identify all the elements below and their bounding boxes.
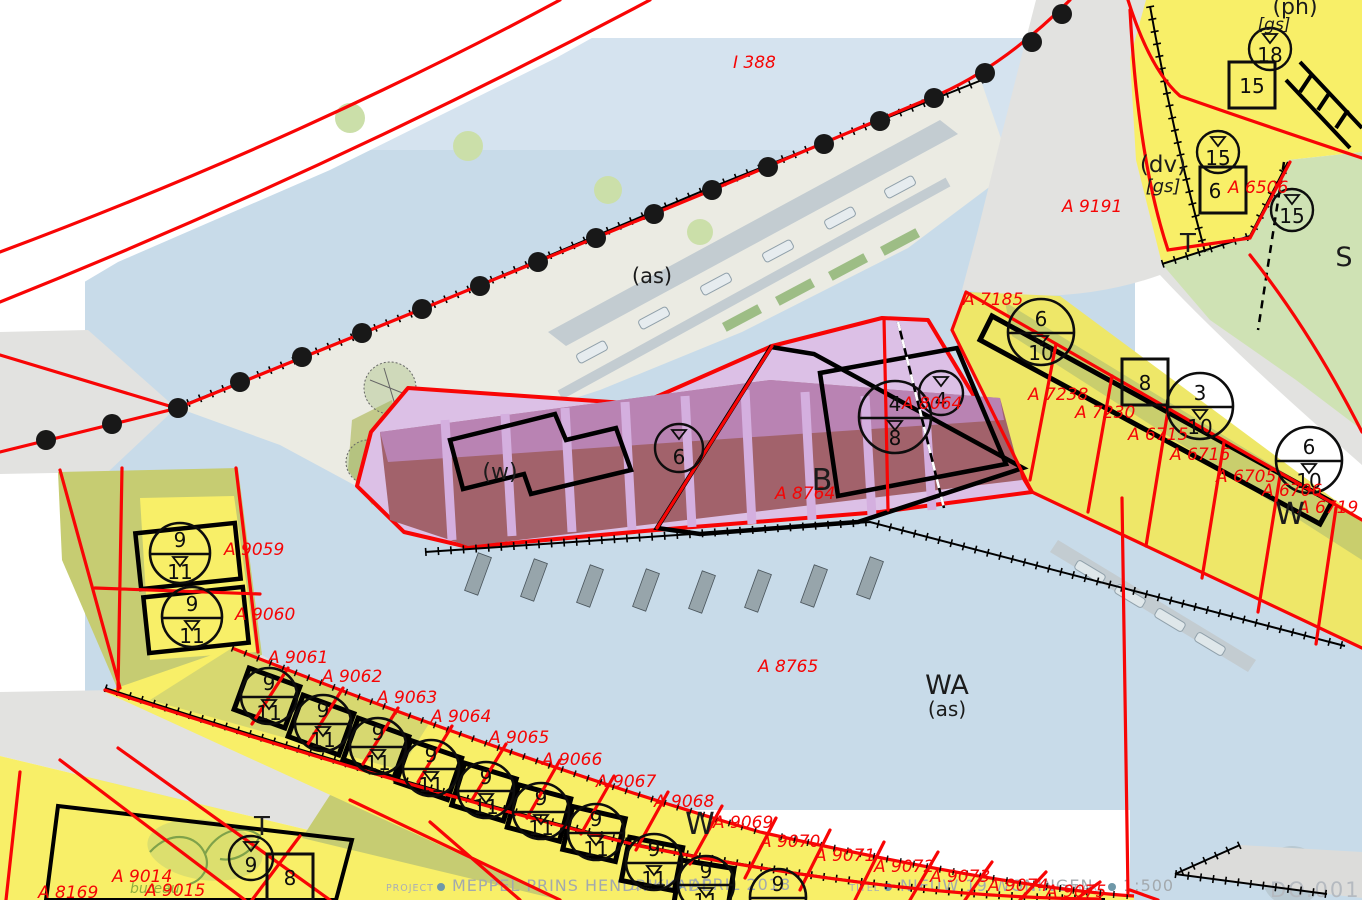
height-symbol-split-circle: 911 — [162, 587, 222, 648]
svg-text:6: 6 — [1035, 307, 1048, 331]
zone-code-label: (as) — [632, 264, 672, 288]
parcel-number-label: A 8765 — [757, 657, 818, 677]
svg-text:9: 9 — [317, 698, 330, 722]
parcel-number-label: A 6506 — [1227, 178, 1288, 198]
parcel-number-label: A 9060 — [234, 605, 295, 625]
height-symbol-split-circle: 911 — [295, 695, 351, 752]
svg-text:6: 6 — [1303, 435, 1316, 459]
parcel-number-label: A 7230 — [1074, 403, 1135, 423]
footer-schaal-value: 1:500 — [1123, 876, 1174, 895]
height-symbol-split-circle: 911 — [458, 762, 514, 819]
svg-text:6: 6 — [673, 445, 686, 469]
parcel-number-label: A 7185 — [962, 290, 1023, 310]
parcel-number-label: A 9072 — [873, 857, 934, 877]
parcel-number-label: A 9074 — [987, 876, 1048, 896]
zone-code-label: (dv) — [1140, 152, 1186, 178]
parcel-number-label: A 9071 — [814, 846, 875, 866]
parcel-number-label: A 9065 — [488, 728, 549, 748]
zone-code-label: (as) — [928, 697, 966, 721]
svg-text:11: 11 — [583, 837, 608, 861]
svg-text:15: 15 — [1239, 74, 1264, 98]
map-svg: PROJECT MEPPEL PRINS HENDRIKKADE DATUM A… — [0, 0, 1362, 900]
height-symbol-split-circle: 911 — [150, 523, 210, 584]
zone-code-label: (w) — [482, 460, 517, 485]
svg-text:11: 11 — [418, 773, 443, 797]
svg-text:9: 9 — [772, 872, 785, 896]
zone-code-label: [gs] — [1258, 15, 1291, 35]
parcel-number-label: A 9061 — [267, 648, 328, 668]
svg-text:10: 10 — [1028, 341, 1053, 365]
svg-text:9: 9 — [263, 671, 276, 695]
svg-text:9: 9 — [590, 807, 603, 831]
zone-code-label: B — [812, 463, 833, 498]
parcel-number-label: A 9191 — [1061, 197, 1122, 217]
svg-text:11: 11 — [365, 751, 390, 775]
height-symbol-split-circle: 911 — [626, 834, 682, 891]
zone-code-label: S — [1335, 242, 1352, 273]
height-symbol-split-circle: 911 — [241, 668, 297, 725]
height-symbol-split-circle: 911 — [403, 740, 459, 797]
svg-text:8: 8 — [889, 426, 902, 450]
svg-text:11: 11 — [179, 624, 204, 648]
parcel-number-label: A 9059 — [223, 540, 284, 560]
svg-text:9: 9 — [535, 786, 548, 810]
parcel-number-label: A 9075 — [1045, 882, 1106, 900]
parcel-number-label: A 9066 — [541, 750, 602, 770]
parcel-number-label: A 9070 — [759, 832, 820, 852]
svg-text:9: 9 — [700, 859, 713, 883]
parcel-number-label: A 6715 — [1127, 425, 1188, 445]
parcel-number-label: I 388 — [733, 53, 776, 73]
parcel-number-label: A 9063 — [376, 688, 437, 708]
zone-code-label: T — [253, 812, 270, 842]
svg-text:15: 15 — [1279, 204, 1304, 228]
svg-text:10: 10 — [1187, 415, 1212, 439]
svg-text:9: 9 — [372, 721, 385, 745]
zone-code-label: [gs] — [1146, 176, 1181, 197]
height-symbol-split-circle: 911 — [568, 804, 624, 861]
parcel-number-label: A 9064 — [430, 707, 491, 727]
footer-project-key: PROJECT — [386, 883, 434, 894]
svg-text:8: 8 — [284, 866, 297, 890]
parcel-number-label: A 8064 — [901, 394, 962, 414]
zoning-map-canvas[interactable]: PROJECT MEPPEL PRINS HENDRIKKADE DATUM A… — [0, 0, 1362, 900]
svg-text:8: 8 — [1139, 371, 1152, 395]
height-symbol-split-circle: 911 — [513, 783, 569, 840]
svg-text:11: 11 — [256, 701, 281, 725]
parcel-number-label: A 6719 — [1297, 498, 1358, 518]
parcel-number-label: A 9073 — [929, 867, 990, 887]
zone-code-label: W — [685, 807, 715, 842]
svg-text:11: 11 — [641, 867, 666, 891]
parcel-number-label: A 9067 — [595, 772, 656, 792]
svg-text:3: 3 — [1194, 381, 1207, 405]
svg-text:4: 4 — [889, 392, 902, 416]
svg-text:11: 11 — [167, 560, 192, 584]
zone-code-label: T — [1179, 229, 1196, 259]
svg-text:9: 9 — [245, 853, 258, 877]
svg-text:11: 11 — [528, 816, 553, 840]
svg-text:9: 9 — [480, 765, 493, 789]
parcel-number-label: A 8169 — [37, 883, 98, 900]
parcel-number-label: A 9069 — [712, 813, 773, 833]
svg-text:11: 11 — [473, 795, 498, 819]
svg-text:9: 9 — [186, 592, 199, 616]
svg-text:6: 6 — [1209, 179, 1222, 203]
svg-text:9: 9 — [174, 528, 187, 552]
parcel-number-label: A 6716 — [1169, 445, 1230, 465]
footer-dot-icon — [1108, 883, 1116, 891]
svg-text:11: 11 — [310, 728, 335, 752]
svg-text:9: 9 — [648, 837, 661, 861]
parcel-number-label: A 9062 — [321, 667, 382, 687]
svg-text:9: 9 — [425, 743, 438, 767]
svg-text:11: 11 — [693, 889, 718, 900]
zone-code-label: W — [1275, 497, 1305, 532]
parcel-number-label: A 7238 — [1027, 385, 1088, 405]
height-symbol-split-circle: 911 — [350, 718, 406, 775]
parcel-number-label: A 9015 — [144, 881, 205, 900]
footer-dot-icon — [437, 883, 445, 891]
